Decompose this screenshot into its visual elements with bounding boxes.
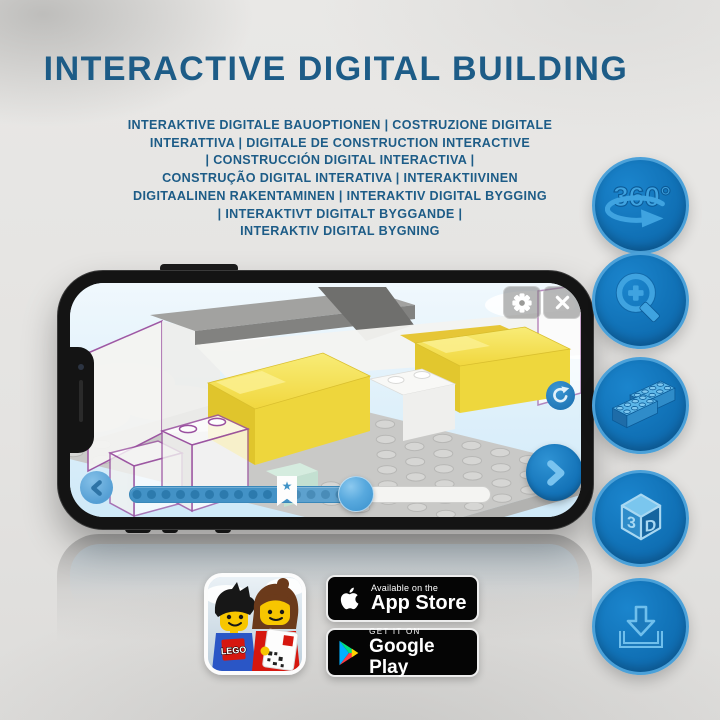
subtitle-line: DIGITAALINEN RAKENTAMINEN | INTERAKTIV D… bbox=[50, 188, 630, 206]
subtitle-line: | CONSTRUCCIÓN DIGITAL INTERACTIVA | bbox=[50, 152, 630, 170]
360-rotation-glyph: 360° bbox=[605, 170, 677, 242]
svg-text:LEGO: LEGO bbox=[221, 645, 247, 657]
settings-button[interactable] bbox=[503, 286, 541, 319]
app-screen: ★ bbox=[70, 283, 581, 517]
bricks-glyph bbox=[606, 371, 676, 441]
chevron-right-icon bbox=[542, 460, 568, 486]
app-store-badge[interactable]: Available on the App Store bbox=[326, 575, 479, 622]
apple-icon bbox=[338, 584, 363, 613]
google-play-icon bbox=[338, 638, 361, 668]
subtitle-translations: INTERAKTIVE DIGITALE BAUOPTIONEN | COSTR… bbox=[50, 117, 630, 241]
magnifier-glyph bbox=[608, 268, 674, 334]
smartphone: ★ bbox=[57, 270, 594, 530]
close-icon bbox=[554, 294, 571, 311]
rotate-view-button[interactable] bbox=[546, 381, 575, 410]
svg-text:D: D bbox=[644, 517, 656, 536]
front-camera bbox=[78, 364, 84, 370]
page-title: INTERACTIVE DIGITAL BUILDING bbox=[16, 50, 656, 89]
subtitle-line: INTERATTIVA | DIGITALE DE CONSTRUCTION I… bbox=[50, 135, 630, 153]
earpiece-speaker bbox=[79, 380, 83, 422]
subtitle-line: CONSTRUÇÃO DIGITAL INTERATIVA | INTERAKT… bbox=[50, 170, 630, 188]
phone-notch bbox=[70, 347, 94, 453]
zoom-in-icon bbox=[592, 252, 689, 349]
3d-cube-glyph: 3 D bbox=[607, 485, 675, 553]
promo-image: INTERACTIVE DIGITAL BUILDING INTERAKTIVE… bbox=[0, 0, 720, 720]
progress-fill bbox=[129, 486, 361, 503]
building-bricks-icon bbox=[592, 357, 689, 454]
subtitle-line: INTERAKTIV DIGITAL BYGNING bbox=[50, 223, 630, 241]
gear-icon bbox=[511, 292, 533, 314]
lego-app-icon[interactable]: LEGO bbox=[204, 573, 306, 675]
360-rotation-icon: 360° bbox=[592, 157, 689, 254]
lego-app-artwork: LEGO bbox=[208, 577, 302, 671]
chevron-left-icon bbox=[89, 480, 105, 496]
close-button[interactable] bbox=[543, 286, 581, 319]
phone-reflection bbox=[57, 534, 592, 684]
google-play-badge[interactable]: GET IT ON Google Play bbox=[326, 628, 479, 677]
next-step-button[interactable] bbox=[526, 444, 581, 501]
girl-minifig bbox=[252, 578, 300, 671]
download-arrow-glyph bbox=[609, 595, 673, 659]
download-icon bbox=[592, 578, 689, 675]
3d-view-icon: 3 D bbox=[592, 470, 689, 567]
svg-text:3: 3 bbox=[627, 514, 636, 532]
progress-slider-handle[interactable] bbox=[338, 476, 374, 512]
google-play-tagline: GET IT ON bbox=[369, 627, 467, 636]
previous-step-button[interactable] bbox=[80, 471, 113, 504]
app-store-name: App Store bbox=[371, 593, 467, 614]
rotate-icon bbox=[550, 385, 571, 406]
subtitle-line: INTERAKTIVE DIGITALE BAUOPTIONEN | COSTR… bbox=[50, 117, 630, 135]
lego-scene bbox=[70, 283, 581, 517]
subtitle-line: | INTERAKTIVT DIGITALT BYGGANDE | bbox=[50, 206, 630, 224]
google-play-name: Google Play bbox=[369, 636, 467, 678]
